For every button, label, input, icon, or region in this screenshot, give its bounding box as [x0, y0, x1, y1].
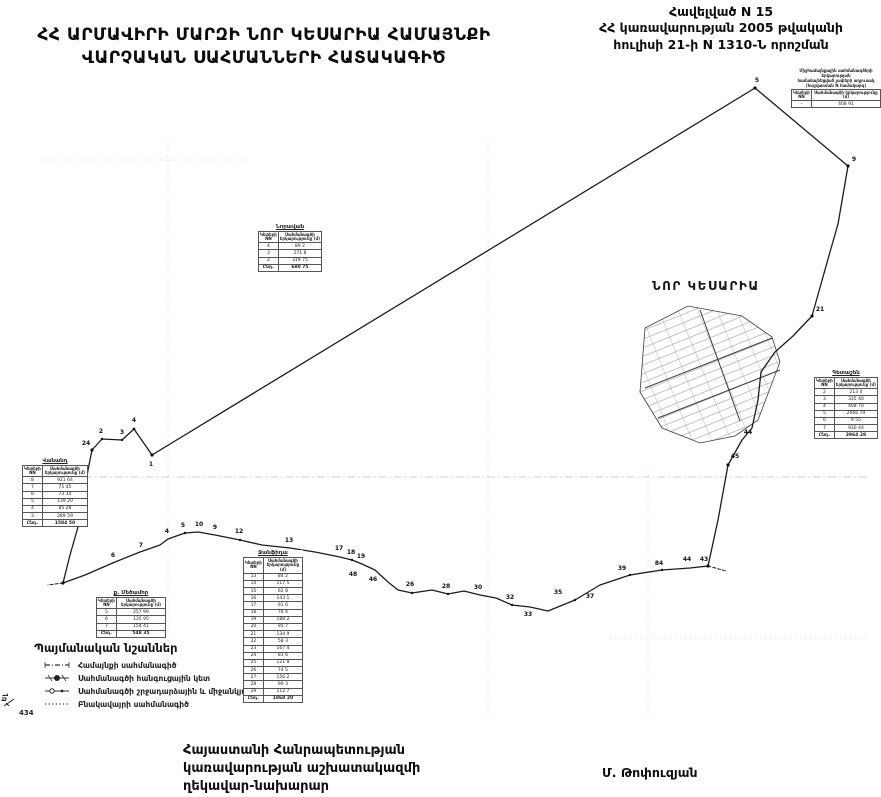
boundary-point-label: 9	[213, 524, 217, 531]
table-cell: 7	[97, 623, 117, 630]
boundary-point-label: 46	[369, 576, 377, 583]
boundary-point-label: 44	[744, 429, 752, 436]
table-cell: 257 99	[116, 609, 165, 616]
boundary-point-label: 24	[82, 440, 90, 447]
table-cell: 2066 79	[834, 410, 877, 417]
table-cell: 408 70	[834, 403, 877, 410]
table-row: 1791 6	[244, 602, 303, 609]
table-cell: 23	[244, 645, 264, 652]
table-row: 29112 7	[244, 688, 303, 695]
annotation-line3: հուլիսի 21-ի N 1310-Ն որոշման	[565, 37, 877, 53]
table-cell: 83 6	[263, 652, 302, 659]
table-cell: 167 4	[263, 645, 302, 652]
boundary-point-label: 30	[474, 584, 482, 591]
boundary-point-label: 7	[139, 542, 143, 549]
table-title: Ջանֆիդա	[243, 550, 303, 556]
table-cell: 25	[244, 659, 264, 666]
exit-tick-mark	[4, 699, 14, 706]
table-cell: 58 3	[263, 638, 302, 645]
table-cell: 139 20	[42, 498, 87, 505]
table-row: 52066 79	[815, 410, 878, 417]
table-row: 21134 9	[244, 631, 303, 638]
boundary-point-label: 43	[700, 556, 708, 563]
decree-annotation: Հավելված N 15 ՀՀ կառավարության 2005 թվակ…	[565, 4, 877, 53]
boundary-length-table: Կետերի NN Սահմանագծի երկարությունը (մ) 2…	[814, 377, 878, 439]
table-cell: 22	[244, 638, 264, 645]
boundary-point-label: 9	[852, 156, 856, 163]
footer-line3: ղեկավար-նախարար	[183, 778, 420, 796]
cadastral-map-page: { "page": { "title_line1": "ՀՀ ԱՐՄԱՎԻՐԻ …	[0, 0, 881, 789]
table-cell: 4	[815, 403, 835, 410]
boundary-point-label: 26	[406, 581, 414, 588]
table-cell: 13	[244, 573, 264, 580]
table-cell: 2	[259, 257, 279, 264]
boundary-point-label: 10	[195, 521, 203, 528]
table-row: 5257 99	[97, 609, 166, 616]
table-cell: –	[792, 101, 812, 108]
table-left: Վանանդ Կետերի NN Սահմանագծի երկարություն…	[22, 458, 88, 527]
table-cell: 3	[259, 250, 279, 257]
table-row: 489 2	[259, 243, 322, 250]
table-row: 16143 1	[244, 595, 303, 602]
table-cell: 213 4	[834, 389, 877, 396]
signatory-name: Մ. Թոփուզյան	[602, 765, 698, 780]
table-cell: 8	[23, 477, 43, 484]
page-title: ՀՀ ԱՐՄԱՎԻՐԻ ՄԱՐԶԻ ՆՈՐ ԿԵՍԱՐԻԱ ՀԱՄԱՅՆՔԻ Վ…	[28, 24, 500, 70]
table-row: 4408 70	[815, 403, 878, 410]
table-cell: 85 28	[42, 505, 87, 512]
table-cell: 91 6	[263, 602, 302, 609]
table-cell: 21	[244, 631, 264, 638]
table-mid-upper: Նորավան Կետերի NN Սահմանագծի երկարությու…	[258, 224, 322, 272]
boundary-point-label: 4	[165, 528, 169, 535]
table-row: 7930 44	[815, 425, 878, 432]
table-cell: 75 45	[42, 484, 87, 491]
table-row: 485 28	[23, 505, 88, 512]
table-row: 5139 20	[23, 498, 88, 505]
table-cell: 4	[23, 505, 43, 512]
table-cell: 28	[244, 681, 264, 688]
community-boundary-symbol-icon	[44, 660, 70, 670]
table-cell: 271 8	[278, 250, 321, 257]
table-cell: 188 2	[263, 616, 302, 623]
table-row: 673 34	[23, 491, 88, 498]
table-row: 69 55	[815, 417, 878, 424]
page-title-line2: ՎԱՐՉԱԿԱՆ ՍԱՀՄԱՆՆԵՐԻ ՀԱՏԱԿԱԳԻԾ	[28, 47, 500, 70]
boundary-point-label: 48	[349, 571, 357, 578]
table-row: 2095 7	[244, 623, 303, 630]
table-row: 7154 41	[97, 623, 166, 630]
boundary-point-label: 39	[618, 565, 626, 572]
table-row: 2319 75	[259, 257, 322, 264]
table-row: 14117 5	[244, 580, 303, 587]
boundary-length-table: Կետերի NN Սահմանագծի երկարությունը (մ) 4…	[258, 231, 322, 272]
signatory-title-block: Հայաստանի Հանրապետության կառավարության ա…	[183, 742, 420, 797]
settlement-grid	[640, 306, 780, 443]
table-title: Գետաշեն	[814, 370, 878, 376]
table-cell: 117 5	[263, 580, 302, 587]
table-cell: 9 55	[834, 417, 877, 424]
boundary-point-label: 33	[524, 611, 532, 618]
boundary-length-table: Կետերի NN Սահմանագծի երկարությունը (մ) 1…	[243, 557, 303, 703]
table-cell: 17	[244, 602, 264, 609]
table-row: 19188 2	[244, 616, 303, 623]
table-cell: 6	[815, 417, 835, 424]
boundary-point-label: 18	[347, 549, 355, 556]
table-cell: 74 5	[263, 667, 302, 674]
table-cell: 20	[244, 623, 264, 630]
table-cell: 18	[244, 609, 264, 616]
table-cell: 76 4	[263, 609, 302, 616]
table-cell: 89 2	[278, 243, 321, 250]
table-row: 3271 8	[259, 250, 322, 257]
table-row: 23167 4	[244, 645, 303, 652]
table-cell: 2	[815, 389, 835, 396]
boundary-point-label: 44	[683, 556, 691, 563]
boundary-length-table: Կետերի NN Սահմանագծի երկարությունը (մ) –…	[791, 89, 881, 108]
table-cell: 5	[23, 498, 43, 505]
table-cell: 5	[97, 609, 117, 616]
table-cell: 4	[259, 243, 279, 250]
boundary-point-label: 13	[285, 537, 293, 544]
boundary-point-label: 2	[99, 428, 103, 435]
table-row: –408 91	[792, 101, 881, 108]
table-cell: 135 95	[116, 616, 165, 623]
table-cell: 921 64	[42, 477, 87, 484]
table-row: 6135 95	[97, 616, 166, 623]
boundary-point-label: 21	[816, 306, 824, 313]
table-cell: 6	[23, 491, 43, 498]
table-cell: 134 9	[263, 631, 302, 638]
table-row: 2483 6	[244, 652, 303, 659]
table-cell: 29	[244, 688, 264, 695]
footer-line2: կառավարության աշխատակազմի	[183, 760, 420, 778]
table-row: 27156 2	[244, 674, 303, 681]
footer-line1: Հայաստանի Հանրապետության	[183, 742, 420, 760]
table-cell: 24	[244, 652, 264, 659]
table-cell: 3	[23, 513, 43, 520]
boundary-point-label: 5	[755, 77, 759, 84]
boundary-point-label: 19	[357, 553, 365, 560]
boundary-point-label: 6	[111, 552, 115, 559]
table-row: 1562 8	[244, 588, 303, 595]
boundary-point-label: 35	[554, 589, 562, 596]
table-row: 1384 2	[244, 573, 303, 580]
table-row: 2899 3	[244, 681, 303, 688]
table-cell: 73 34	[42, 491, 87, 498]
table-row: 3335 40	[815, 396, 878, 403]
boundary-point-label: 5	[181, 522, 185, 529]
table-cell: 14	[244, 580, 264, 587]
table-cell: 16	[244, 595, 264, 602]
table-cell: 19	[244, 616, 264, 623]
table-cell: 112 7	[263, 688, 302, 695]
annotation-line1: Հավելված N 15	[565, 4, 877, 20]
boundary-length-table: Կետերի NN Սահմանագծի երկարությունը (մ) 5…	[96, 597, 166, 638]
table-cell: 7	[23, 484, 43, 491]
turning-points-symbol-icon	[44, 686, 70, 696]
table-cell: 319 75	[278, 257, 321, 264]
table-cell: 156 2	[263, 674, 302, 681]
table-cell: 143 1	[263, 595, 302, 602]
table-long-south: Ջանֆիդա Կետերի NN Սահմանագծի երկարությու…	[243, 550, 303, 703]
boundary-length-table: Կետերի NN Սահմանագծի երկարությունը (մ) 8…	[22, 465, 88, 527]
table-caption: Միջհամայնքային սահմանագծերի երկարության …	[791, 68, 881, 88]
boundary-point-label: 28	[442, 583, 450, 590]
boundary-point-label: 37	[586, 593, 594, 600]
table-row: 2213 4	[815, 389, 878, 396]
table-cell: 3	[815, 396, 835, 403]
table-cell: 6	[97, 616, 117, 623]
table-title: Վանանդ	[22, 458, 88, 464]
boundary-point-label: 4	[132, 417, 136, 424]
table-cell: 62 8	[263, 588, 302, 595]
page-title-line1: ՀՀ ԱՐՄԱՎԻՐԻ ՄԱՐԶԻ ՆՈՐ ԿԵՍԱՐԻԱ ՀԱՄԱՅՆՔԻ	[28, 24, 500, 47]
boundary-point-label: 17	[335, 545, 343, 552]
annotation-line2: ՀՀ կառավարության 2005 թվականի	[565, 20, 877, 36]
table-top-right: Միջհամայնքային սահմանագծերի երկարության …	[791, 68, 881, 108]
table-title: Նորավան	[258, 224, 322, 230]
settlement-boundary-symbol-icon	[44, 699, 70, 709]
table-cell: 95 7	[263, 623, 302, 630]
boundary-point-label: 32	[506, 594, 514, 601]
table-row: 8921 64	[23, 477, 88, 484]
table-cell: 335 40	[834, 396, 877, 403]
table-cell: 27	[244, 674, 264, 681]
table-row: 1876 4	[244, 609, 303, 616]
table-row: 2258 3	[244, 638, 303, 645]
table-row: 775 45	[23, 484, 88, 491]
table-small-south: ք. Մեծամոր Կետերի NN Սահմանագծի երկարութ…	[96, 590, 166, 638]
table-cell: 99 3	[263, 681, 302, 688]
table-cell: 15	[244, 588, 264, 595]
table-cell: 121 8	[263, 659, 302, 666]
junction-point-symbol-icon	[44, 673, 70, 683]
table-row: 2674 5	[244, 667, 303, 674]
table-cell: 7	[815, 425, 835, 432]
boundary-point-label: 84	[655, 560, 663, 567]
table-cell: 154 41	[116, 623, 165, 630]
table-cell: 289 59	[42, 513, 87, 520]
table-cell: 26	[244, 667, 264, 674]
boundary-point-label: 1	[149, 461, 153, 468]
boundary-point-label: 12	[235, 528, 243, 535]
table-cell: 930 44	[834, 425, 877, 432]
settlement-name-label: ՆՈՐ ԿԵՍԱՐԻԱ	[652, 279, 760, 293]
boundary-point-label: 45	[731, 453, 739, 460]
table-row: 3289 59	[23, 513, 88, 520]
boundary-point-label: 3	[120, 429, 124, 436]
table-right: Գետաշեն Կետերի NN Սահմանագծի երկարությու…	[814, 370, 878, 439]
table-title: ք. Մեծամոր	[96, 590, 166, 596]
table-cell: 84 2	[263, 573, 302, 580]
table-cell: 5	[815, 410, 835, 417]
table-cell: 408 91	[811, 101, 880, 108]
table-row: 25121 8	[244, 659, 303, 666]
